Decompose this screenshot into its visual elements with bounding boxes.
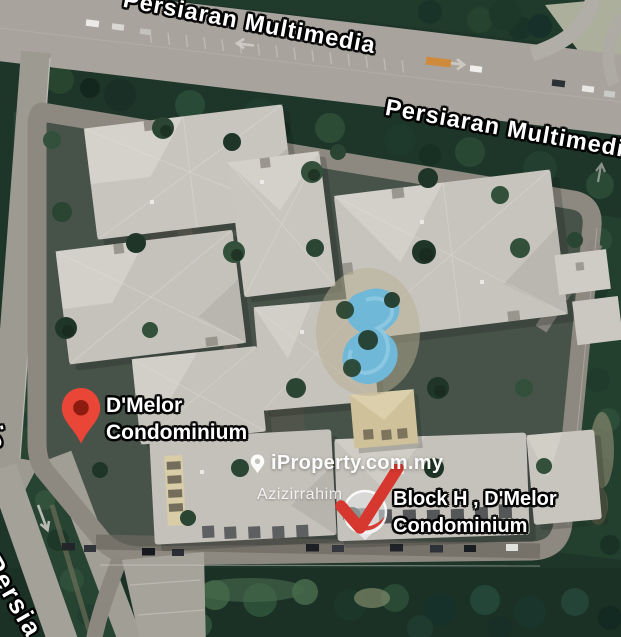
- map-pin-icon: [60, 387, 102, 445]
- dmelor-map-pin[interactable]: [60, 387, 102, 445]
- watermark-brand: iProperty.com.my: [271, 452, 443, 475]
- building-roof: [228, 150, 343, 303]
- satellite-imagery: [0, 0, 621, 637]
- block-h-label-line1: Block H , D'Melor: [393, 486, 557, 513]
- location-pin-icon: [250, 454, 265, 474]
- block-h-label-line2: Condominium: [393, 513, 557, 540]
- map-canvas[interactable]: Persiaran Multimedia Persiaran Multimedi…: [0, 0, 621, 637]
- iproperty-watermark: iProperty.com.my: [250, 452, 443, 475]
- pool-area: [316, 268, 420, 396]
- clubhouse-roof: [350, 389, 423, 454]
- block-h-label: Block H , D'Melor Condominium: [393, 486, 557, 540]
- watermark-agent-name: Azizirrahim: [257, 486, 343, 504]
- dmelor-label: D'Melor Condominium: [106, 392, 247, 446]
- dmelor-label-line1: D'Melor: [106, 392, 247, 419]
- dmelor-label-line2: Condominium: [106, 419, 247, 446]
